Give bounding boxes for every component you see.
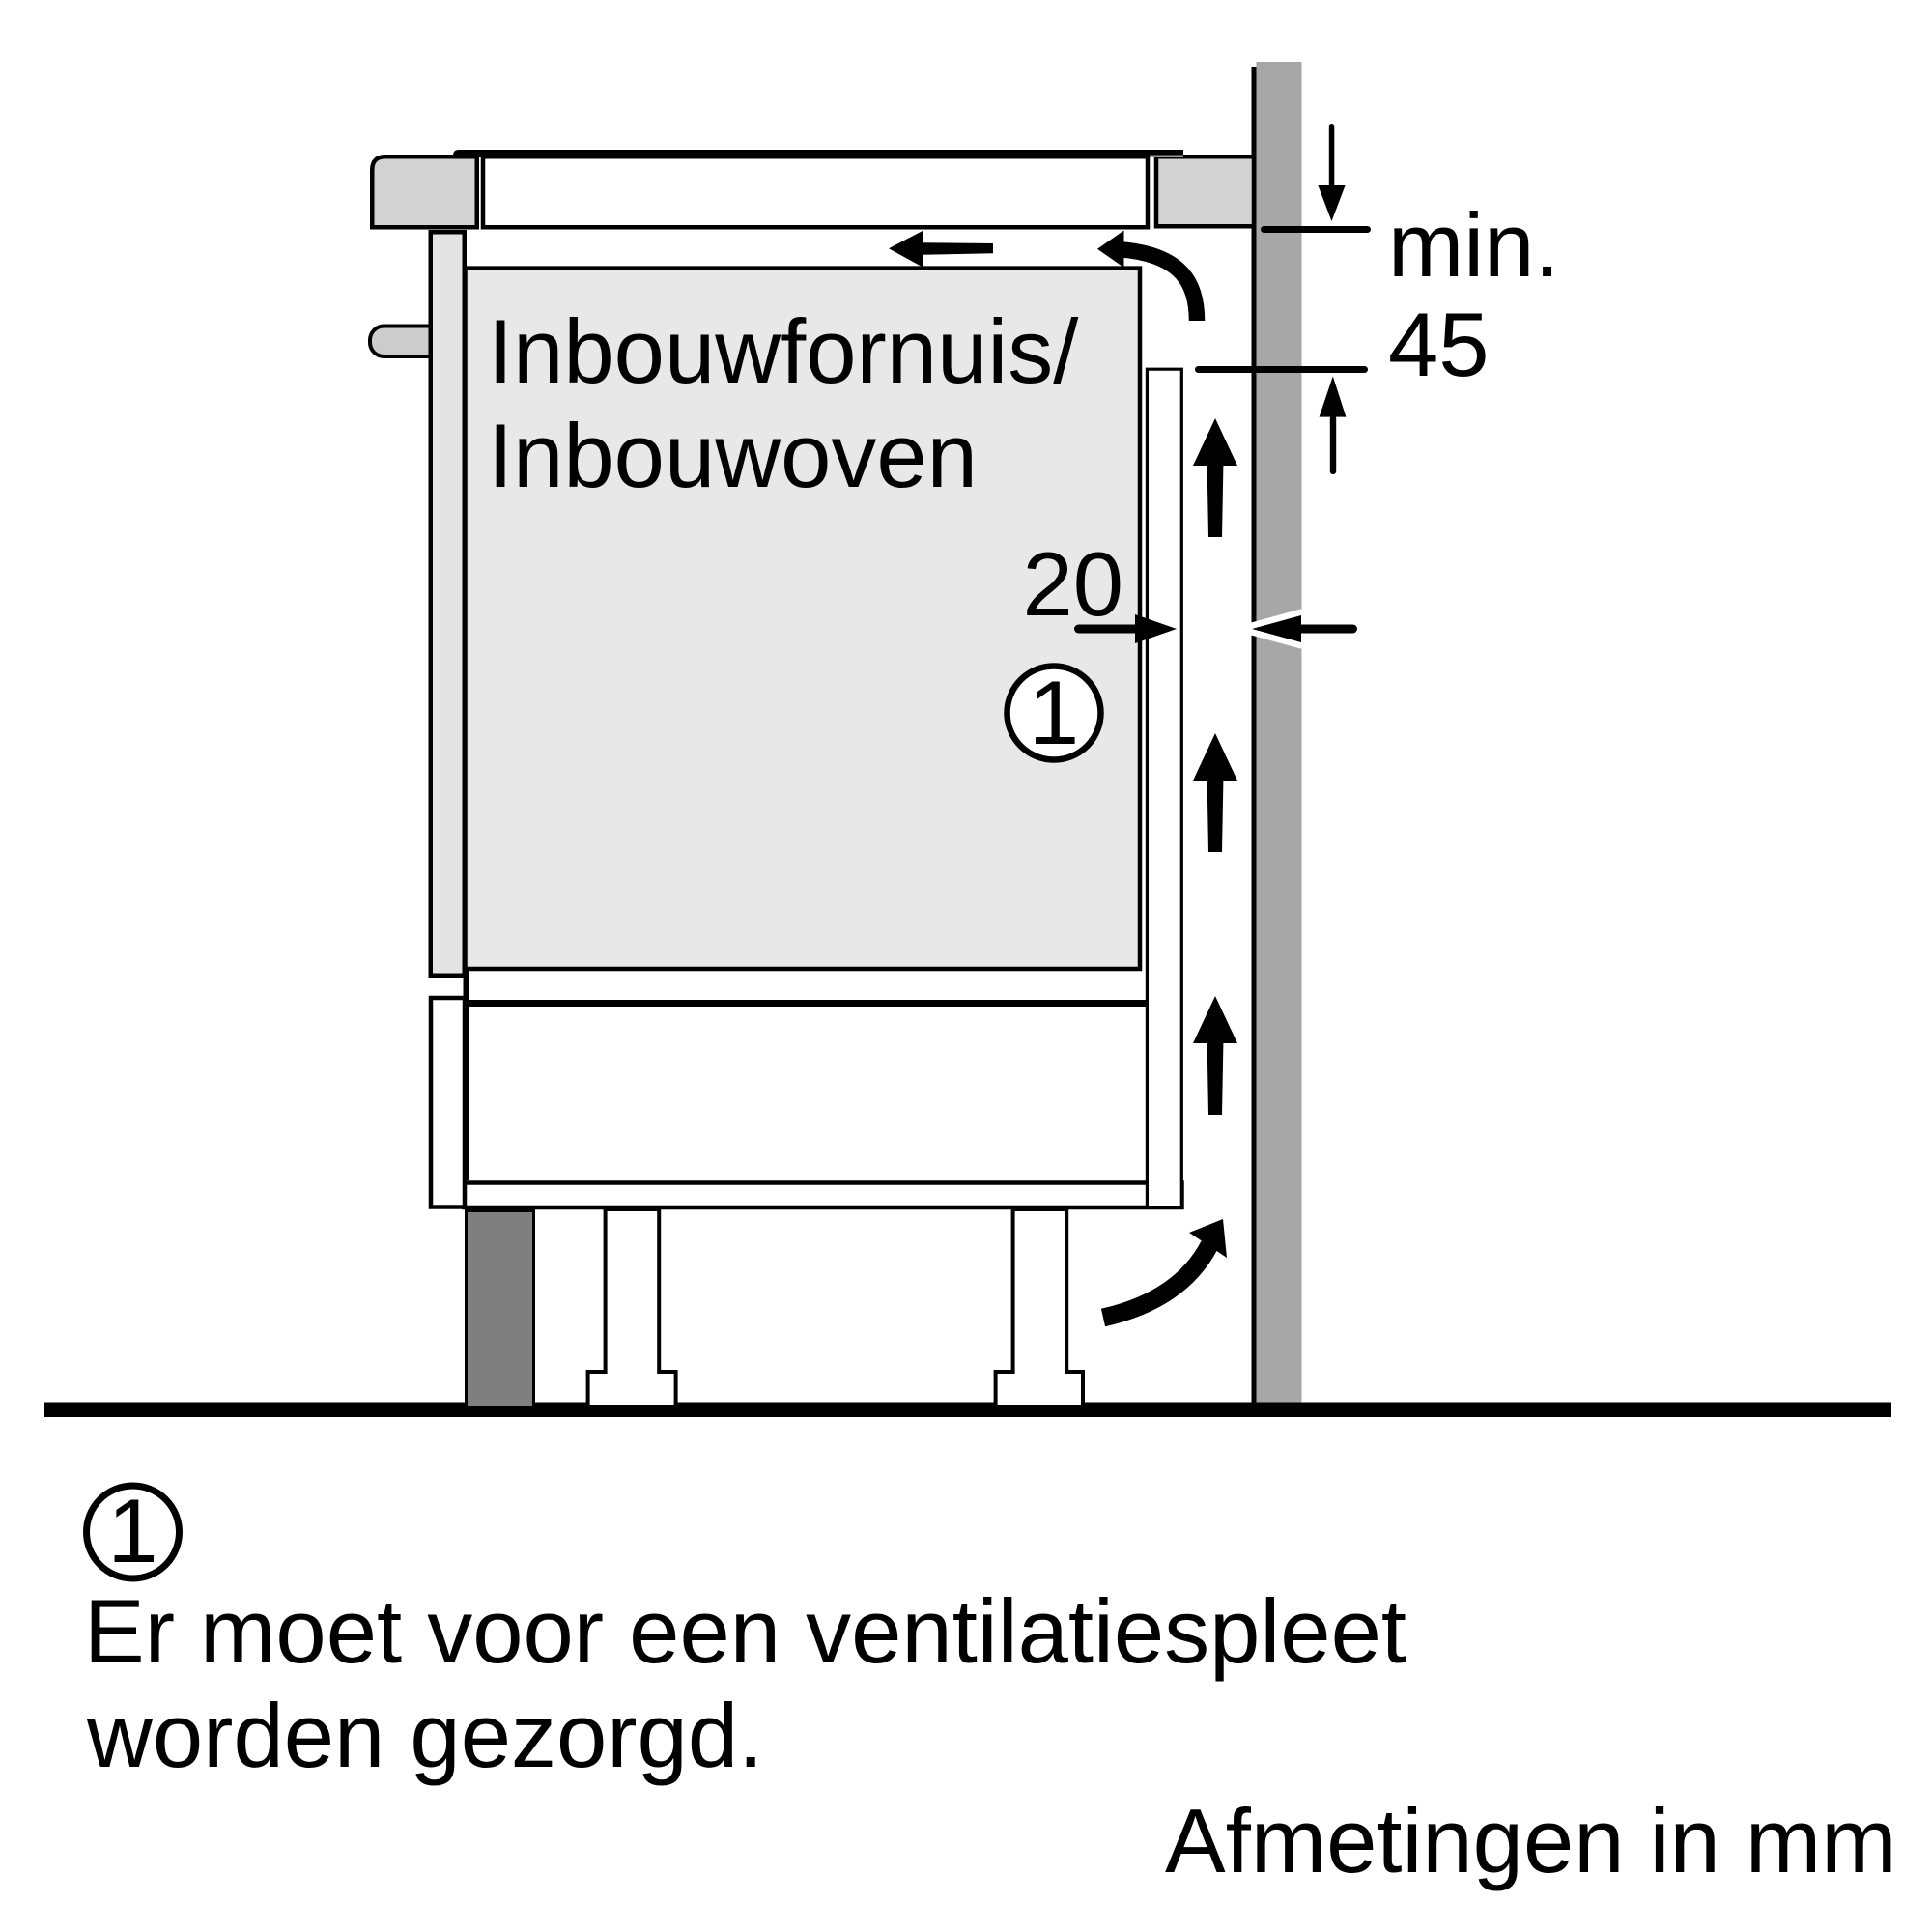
svg-text:1: 1 — [1029, 662, 1079, 763]
svg-text:min.: min. — [1388, 194, 1560, 296]
svg-text:20: 20 — [1022, 533, 1123, 635]
svg-text:Er moet voor een ventilatiespl: Er moet voor een ventilatiespleet — [84, 1580, 1406, 1682]
svg-text:1: 1 — [107, 1480, 157, 1581]
svg-text:Inbouwfornuis/: Inbouwfornuis/ — [488, 300, 1079, 402]
svg-text:45: 45 — [1388, 294, 1490, 395]
svg-text:worden gezorgd.: worden gezorgd. — [86, 1685, 763, 1786]
svg-text:Afmetingen in mm: Afmetingen in mm — [1165, 1790, 1897, 1891]
svg-text:Inbouwoven: Inbouwoven — [488, 405, 978, 506]
